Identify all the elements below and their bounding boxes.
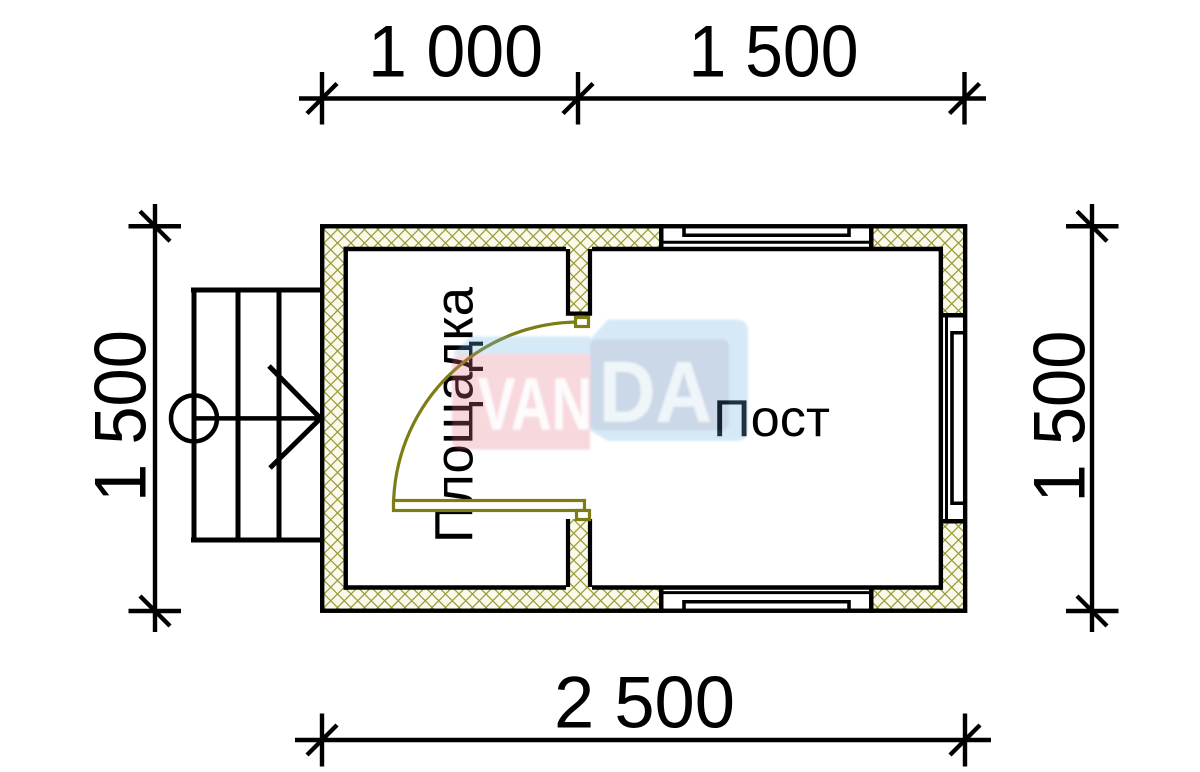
svg-text:VAN: VAN	[478, 363, 592, 446]
svg-text:DA: DA	[599, 345, 712, 441]
svg-text:1 500: 1 500	[81, 330, 162, 502]
svg-text:1 500: 1 500	[1020, 331, 1101, 503]
svg-text:1 000: 1 000	[368, 12, 543, 93]
svg-text:2 500: 2 500	[554, 663, 735, 744]
svg-text:1 500: 1 500	[689, 12, 859, 93]
